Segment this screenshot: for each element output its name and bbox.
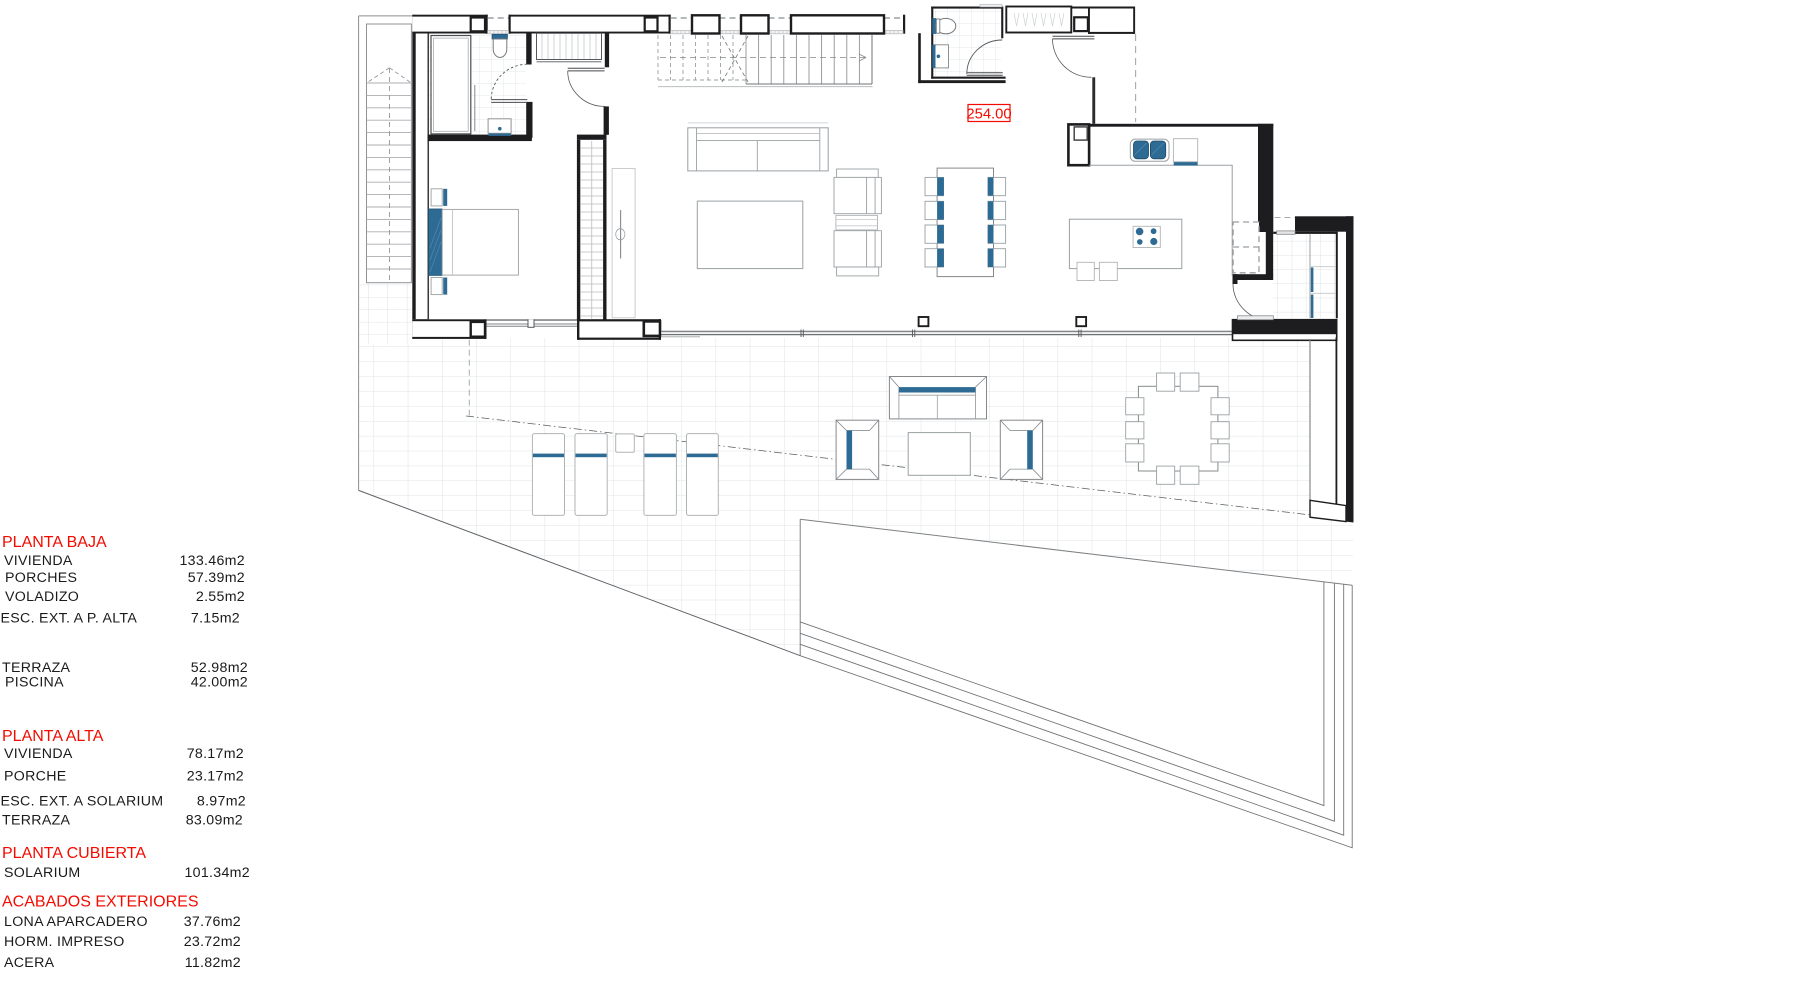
svg-text:PLANTA ALTA: PLANTA ALTA [2,728,104,745]
svg-text:PORCHE: PORCHE [4,769,67,785]
svg-text:23.17m2: 23.17m2 [187,769,244,785]
svg-text:ESC. EXT. A SOLARIUM: ESC. EXT. A SOLARIUM [1,793,164,809]
svg-text:VIVIENDA: VIVIENDA [4,553,73,569]
svg-text:7.15m2: 7.15m2 [191,611,240,627]
svg-text:VOLADIZO: VOLADIZO [5,589,79,605]
svg-text:8.97m2: 8.97m2 [197,793,246,809]
svg-text:2.55m2: 2.55m2 [196,589,245,605]
svg-text:78.17m2: 78.17m2 [187,746,244,762]
svg-text:ESC. EXT. A P. ALTA: ESC. EXT. A P. ALTA [1,611,138,627]
svg-text:TERRAZA: TERRAZA [2,813,71,829]
svg-text:57.39m2: 57.39m2 [188,570,245,586]
svg-text:ACABADOS EXTERIORES: ACABADOS EXTERIORES [2,893,199,910]
svg-text:133.46m2: 133.46m2 [179,553,245,569]
svg-text:LONA APARCADERO: LONA APARCADERO [4,914,148,930]
svg-text:ACERA: ACERA [4,955,55,971]
svg-text:VIVIENDA: VIVIENDA [4,746,73,762]
svg-text:42.00m2: 42.00m2 [191,675,248,691]
svg-text:11.82m2: 11.82m2 [185,955,241,971]
svg-text:HORM. IMPRESO: HORM. IMPRESO [4,934,125,950]
svg-text:254.00: 254.00 [966,107,1011,123]
svg-text:PLANTA BAJA: PLANTA BAJA [2,534,107,551]
svg-text:SOLARIUM: SOLARIUM [4,865,81,881]
svg-text:23.72m2: 23.72m2 [184,934,241,950]
svg-text:83.09m2: 83.09m2 [186,813,243,829]
svg-text:PORCHES: PORCHES [5,570,77,586]
svg-text:PISCINA: PISCINA [5,675,64,691]
svg-text:101.34m2: 101.34m2 [184,865,250,881]
svg-text:PLANTA CUBIERTA: PLANTA CUBIERTA [2,845,146,862]
svg-text:37.76m2: 37.76m2 [184,914,241,930]
